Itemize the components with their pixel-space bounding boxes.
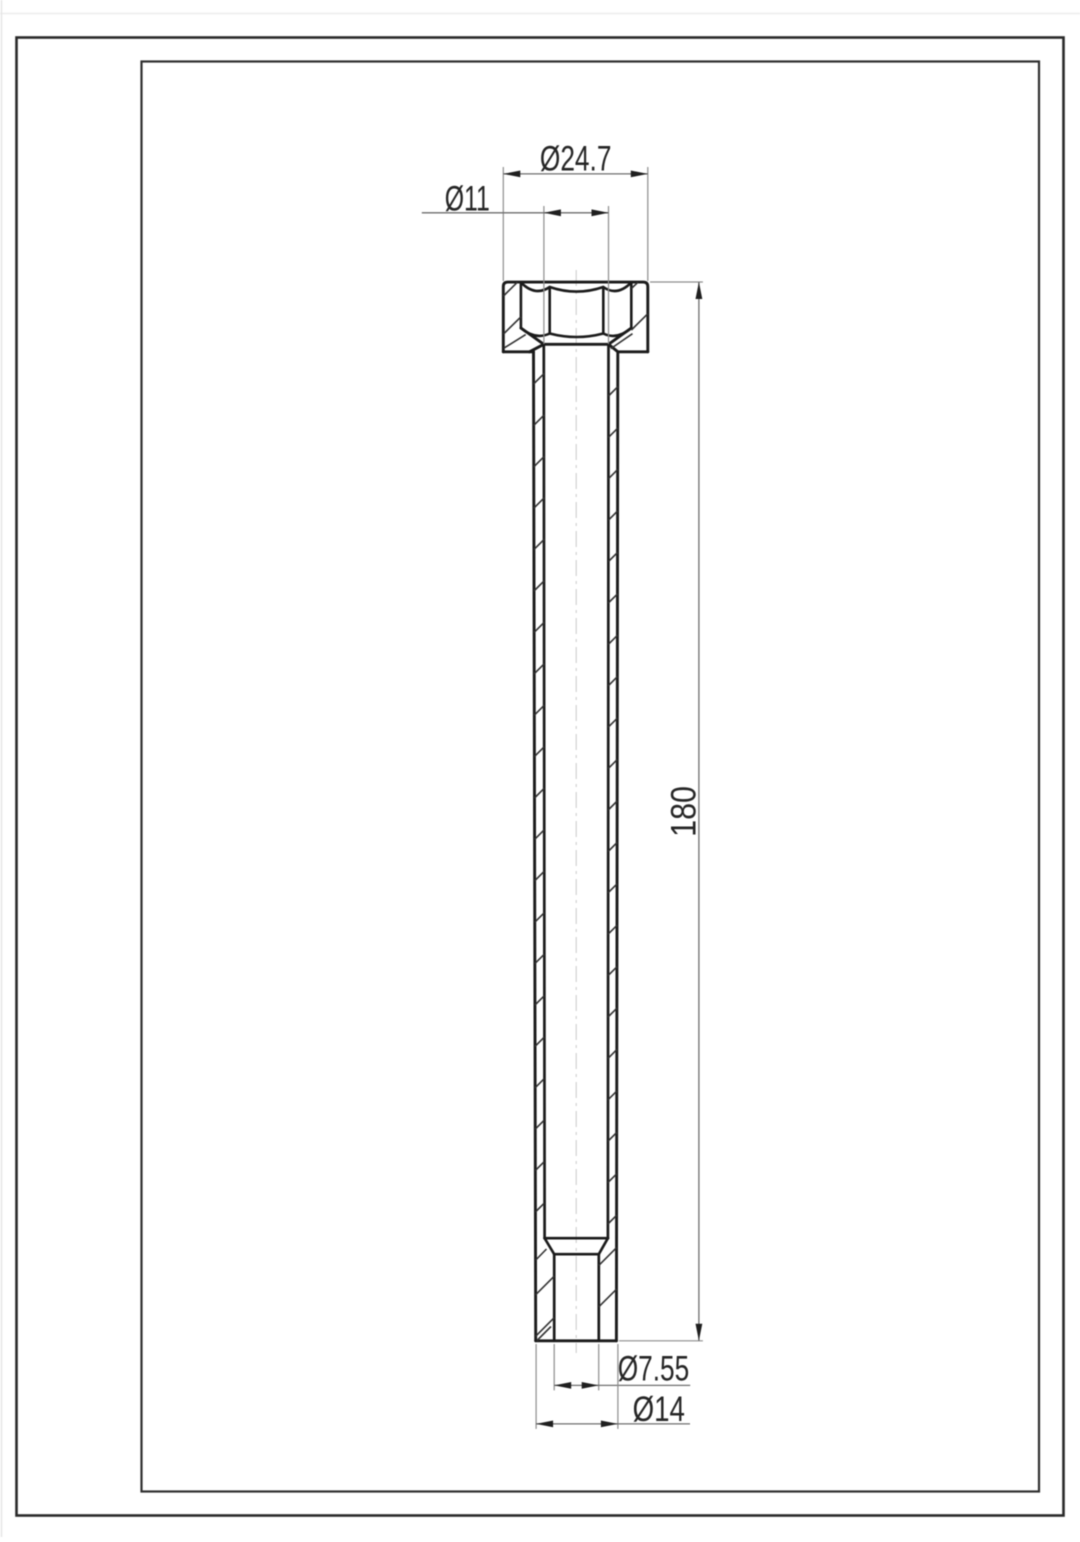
svg-text:Ø14: Ø14	[633, 1389, 685, 1429]
svg-text:Ø7.55: Ø7.55	[618, 1349, 690, 1389]
svg-text:180: 180	[664, 786, 704, 837]
svg-text:Ø24.7: Ø24.7	[540, 138, 612, 178]
svg-text:Ø11: Ø11	[445, 179, 490, 218]
